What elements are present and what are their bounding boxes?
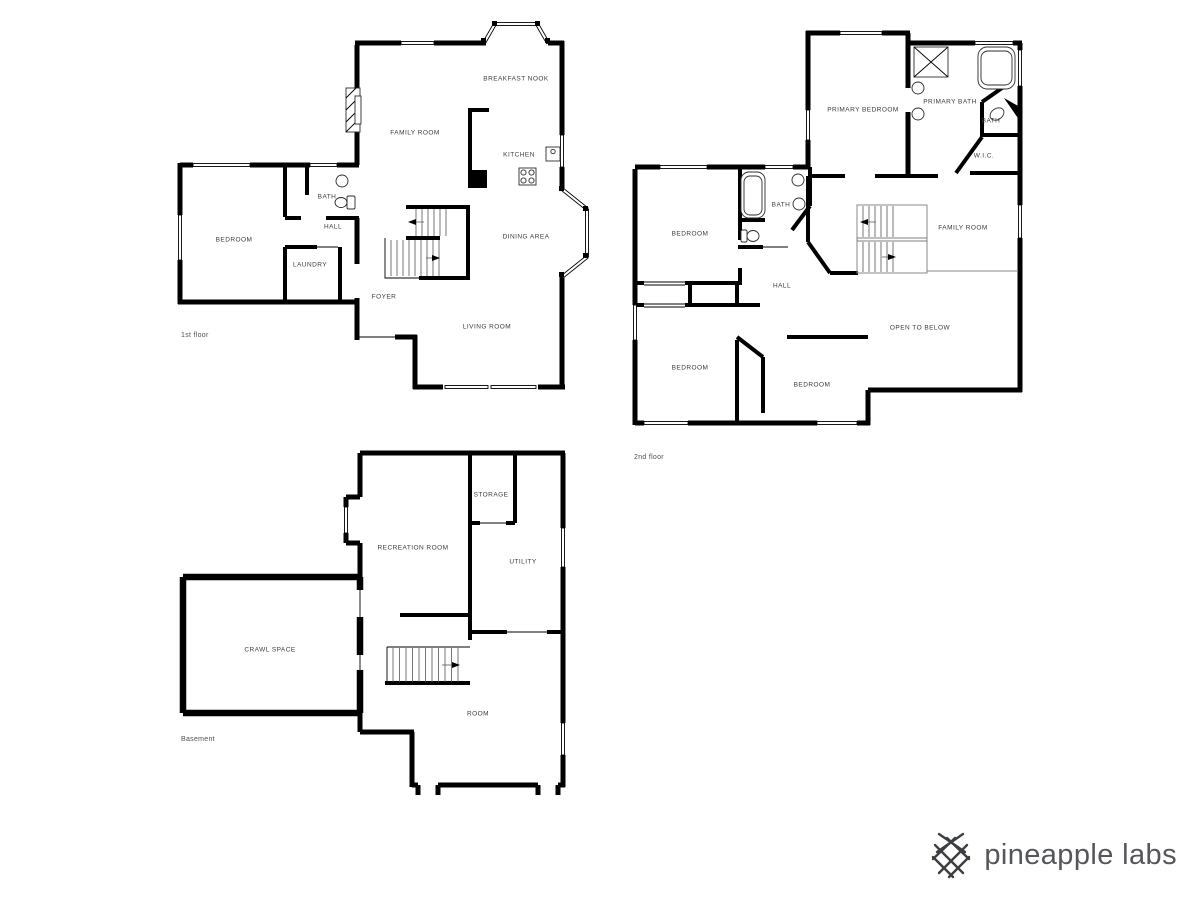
room-label-kitchen: KITCHEN [503, 152, 535, 159]
room-label-bedroom: BEDROOM [216, 237, 253, 244]
stairs-basement [387, 647, 470, 683]
room-label-hall-2: HALL [773, 283, 791, 290]
room-label-bath-hall: BATH [772, 202, 791, 209]
first-floor-walls-drawing [170, 10, 595, 400]
room-label-crawl-space: CRAWL SPACE [244, 647, 295, 654]
room-label-bath-small: BATH [982, 118, 1001, 125]
room-label-foyer: FOYER [372, 294, 397, 301]
room-label-recreation-room: RECREATION ROOM [378, 545, 449, 552]
room-label-family-room-2: FAMILY ROOM [938, 225, 988, 232]
primary-bath-fixtures [912, 47, 1020, 123]
bathroom-fixtures [335, 175, 355, 209]
room-label-primary-bedroom: PRIMARY BEDROOM [827, 107, 899, 114]
basement-plan: STORAGE RECREATION ROOM UTILITY CRAWL SP… [170, 445, 575, 795]
second-floor-plan: PRIMARY BEDROOM PRIMARY BATH BATH W.I.C.… [630, 10, 1030, 460]
room-label-wic: W.I.C. [974, 153, 994, 160]
pineapple-labs-icon [931, 831, 971, 879]
room-label-bedroom-3: BEDROOM [794, 382, 831, 389]
fireplace [346, 88, 361, 132]
floor-title-first: 1st floor [181, 332, 209, 339]
room-label-hall: HALL [324, 224, 342, 231]
room-label-storage: STORAGE [474, 492, 509, 499]
floor-title-second: 2nd floor [634, 454, 664, 461]
room-label-utility: UTILITY [509, 559, 536, 566]
room-label-bedroom-1: BEDROOM [672, 231, 709, 238]
room-label-open-to-below: OPEN TO BELOW [890, 325, 950, 332]
floorplan-canvas: BREAKFAST NOOK FAMILY ROOM KITCHEN BATH … [0, 0, 1200, 900]
stairs-second-floor [857, 205, 1018, 273]
room-label-living-room: LIVING ROOM [463, 324, 511, 331]
room-label-bath: BATH [318, 194, 337, 201]
first-floor-plan: BREAKFAST NOOK FAMILY ROOM KITCHEN BATH … [170, 10, 595, 400]
brand-logo: pineapple labs [931, 831, 1177, 879]
kitchen-sink [546, 147, 560, 161]
room-label-laundry: LAUNDRY [293, 262, 327, 269]
room-label-family-room: FAMILY ROOM [390, 130, 440, 137]
room-label-breakfast-nook: BREAKFAST NOOK [483, 76, 548, 83]
basement-walls-drawing [170, 445, 575, 795]
room-label-room: ROOM [467, 711, 489, 718]
room-label-bedroom-2: BEDROOM [672, 365, 709, 372]
floor-title-basement: Basement [181, 736, 215, 743]
stairs-first-floor [385, 209, 446, 278]
room-label-primary-bath: PRIMARY BATH [923, 99, 976, 106]
brand-name: pineapple labs [984, 839, 1177, 872]
room-label-dining-area: DINING AREA [503, 234, 550, 241]
kitchen-stove [519, 168, 536, 185]
